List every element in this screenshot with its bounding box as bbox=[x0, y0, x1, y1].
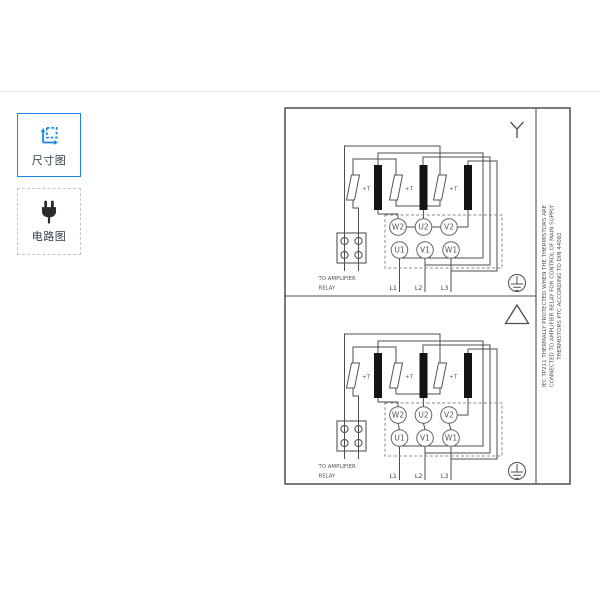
terminal-v1: V1 bbox=[420, 246, 430, 255]
wiring-diagram-svg: +T +T +T W2 U2 V2 U1 V1 W1 TO AMPLIFIER … bbox=[0, 0, 600, 600]
thermistor-label: +T bbox=[449, 187, 458, 193]
supply-l2: L2 bbox=[415, 472, 423, 480]
supply-l3: L3 bbox=[441, 472, 449, 480]
star-connection-panel: +T +T +T W2 U2 V2 U1 V1 W1 TO AMPLIFIER … bbox=[318, 122, 526, 292]
earth-ground-icon bbox=[509, 463, 526, 480]
amplifier-relay-connector bbox=[337, 421, 366, 451]
terminal-u1: U1 bbox=[394, 246, 404, 255]
supply-l2: L2 bbox=[415, 284, 423, 292]
side-note-line2: CONNECTED TO AMPLIFIER RELAY FOR CONTROL… bbox=[550, 204, 556, 387]
supply-l1: L1 bbox=[389, 284, 397, 292]
terminal-w2: W2 bbox=[392, 411, 404, 420]
earth-ground-icon bbox=[509, 275, 526, 292]
relay-note-line1: TO AMPLIFIER bbox=[318, 464, 357, 470]
motor-windings bbox=[374, 165, 472, 210]
drawing-frame bbox=[285, 108, 570, 484]
star-symbol-icon bbox=[511, 122, 524, 138]
relay-note-line2: RELAY bbox=[319, 474, 337, 480]
supply-l1: L1 bbox=[389, 472, 397, 480]
terminal-v2: V2 bbox=[444, 223, 454, 232]
delta-connection-panel: +T +T +T W2 U2 V2 U1 V1 W1 TO AMPLIFIER … bbox=[318, 305, 529, 480]
thermistor-label: +T bbox=[362, 375, 371, 381]
terminal-w1: W1 bbox=[445, 434, 457, 443]
thermistor-label: +T bbox=[405, 375, 414, 381]
thermistor-label: +T bbox=[449, 375, 458, 381]
delta-symbol-icon bbox=[506, 305, 529, 324]
thermistor-label: +T bbox=[405, 187, 414, 193]
terminal-u2: U2 bbox=[418, 411, 428, 420]
relay-note-line1: TO AMPLIFIER bbox=[318, 276, 357, 282]
terminal-w2: W2 bbox=[392, 223, 404, 232]
motor-windings bbox=[374, 353, 472, 398]
terminal-u1: U1 bbox=[394, 434, 404, 443]
terminal-u2: U2 bbox=[418, 223, 428, 232]
relay-note-line2: RELAY bbox=[319, 286, 337, 292]
terminal-w1: W1 bbox=[445, 246, 457, 255]
side-note-line1: IEC TP211 THERMALLY PROTECTED WHEN THE T… bbox=[542, 204, 548, 387]
amplifier-relay-connector bbox=[337, 233, 366, 263]
side-note: IEC TP211 THERMALLY PROTECTED WHEN THE T… bbox=[542, 204, 563, 387]
wiring-drawing: +T +T +T W2 U2 V2 U1 V1 W1 TO AMPLIFIER … bbox=[0, 0, 600, 600]
thermistor-label: +T bbox=[362, 187, 371, 193]
supply-l3: L3 bbox=[441, 284, 449, 292]
terminal-v2: V2 bbox=[444, 411, 454, 420]
side-note-line3: THERMISTORS PTC ACCORDING TO DIN 44082 bbox=[557, 232, 563, 360]
terminal-v1: V1 bbox=[420, 434, 430, 443]
